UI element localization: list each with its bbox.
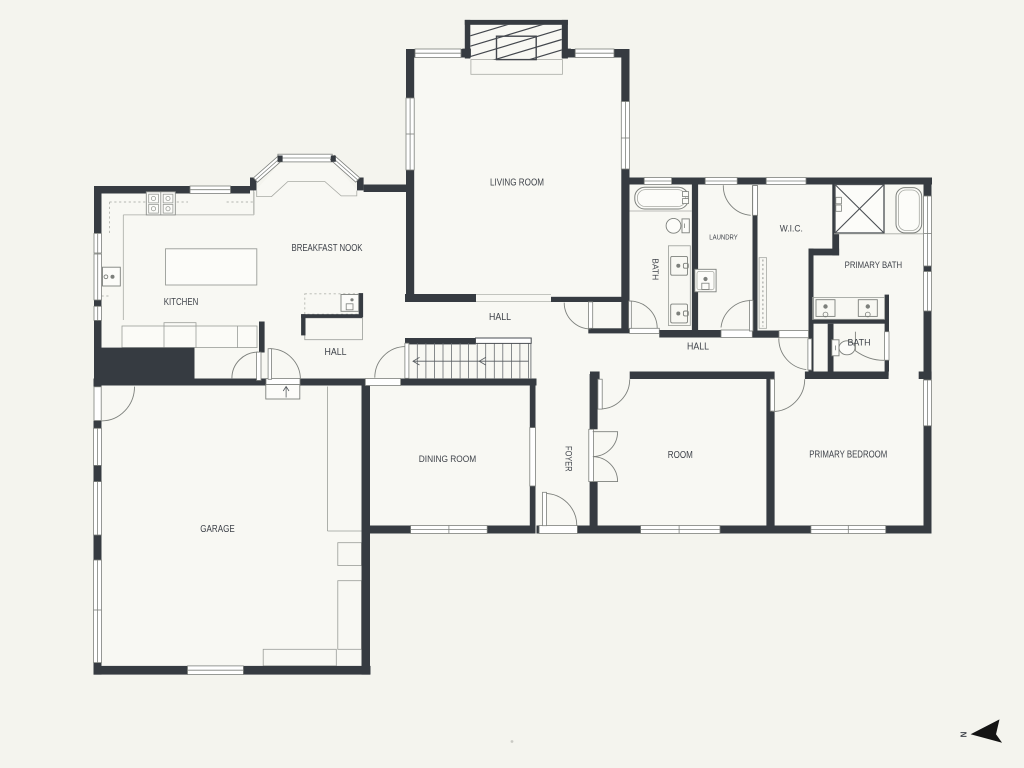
svg-text:N: N [959, 731, 968, 737]
svg-text:ROOM: ROOM [668, 450, 693, 461]
svg-text:GARAGE: GARAGE [200, 524, 235, 535]
svg-text:HALL: HALL [325, 347, 347, 358]
svg-text:DINING ROOM: DINING ROOM [419, 454, 477, 465]
svg-text:BREAKFAST NOOK: BREAKFAST NOOK [292, 243, 363, 254]
svg-text:LAUNDRY: LAUNDRY [709, 235, 738, 242]
svg-text:HALL: HALL [489, 312, 511, 323]
svg-text:FOYER: FOYER [563, 446, 573, 472]
svg-text:BATH: BATH [848, 337, 871, 348]
svg-text:PRIMARY BATH: PRIMARY BATH [845, 260, 903, 271]
svg-text:KITCHEN: KITCHEN [164, 297, 199, 308]
svg-text:W.I.C.: W.I.C. [780, 224, 803, 234]
svg-text:PRIMARY BEDROOM: PRIMARY BEDROOM [809, 449, 887, 460]
svg-text:HALL: HALL [687, 342, 709, 353]
svg-text:LIVING ROOM: LIVING ROOM [490, 177, 544, 188]
svg-text:BATH: BATH [650, 258, 660, 280]
